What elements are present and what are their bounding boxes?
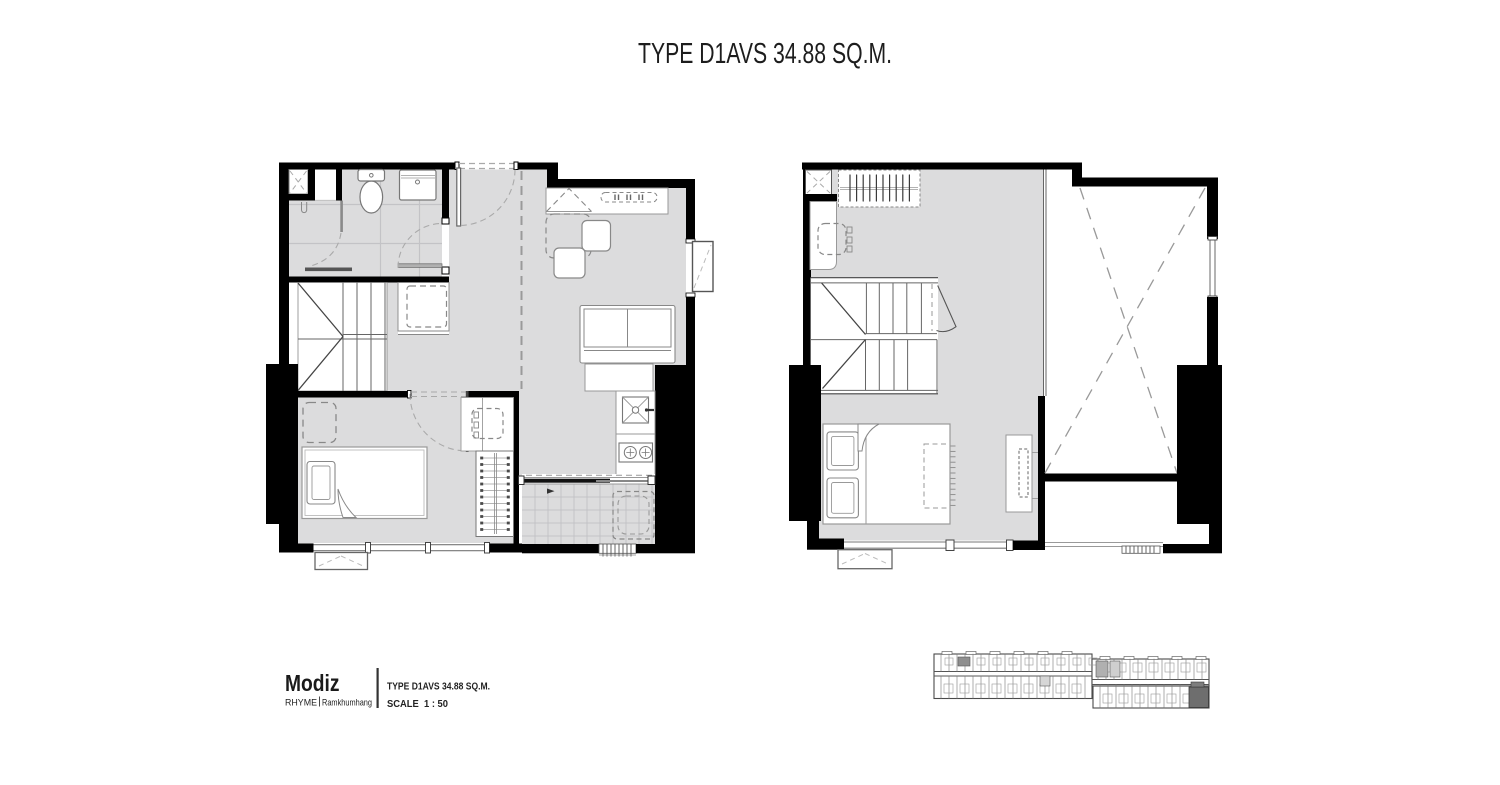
svg-text:Ramkhumhang: Ramkhumhang (322, 698, 372, 709)
svg-text:SCALE 1 : 50: SCALE 1 : 50 (387, 698, 448, 710)
svg-text:Modiz: Modiz (285, 670, 340, 696)
svg-text:RHYME: RHYME (285, 698, 317, 709)
svg-text:TYPE D1AVS 34.88 SQ.M.: TYPE D1AVS 34.88 SQ.M. (638, 38, 892, 70)
svg-text:TYPE D1AVS 34.88 SQ.M.: TYPE D1AVS 34.88 SQ.M. (387, 681, 490, 693)
